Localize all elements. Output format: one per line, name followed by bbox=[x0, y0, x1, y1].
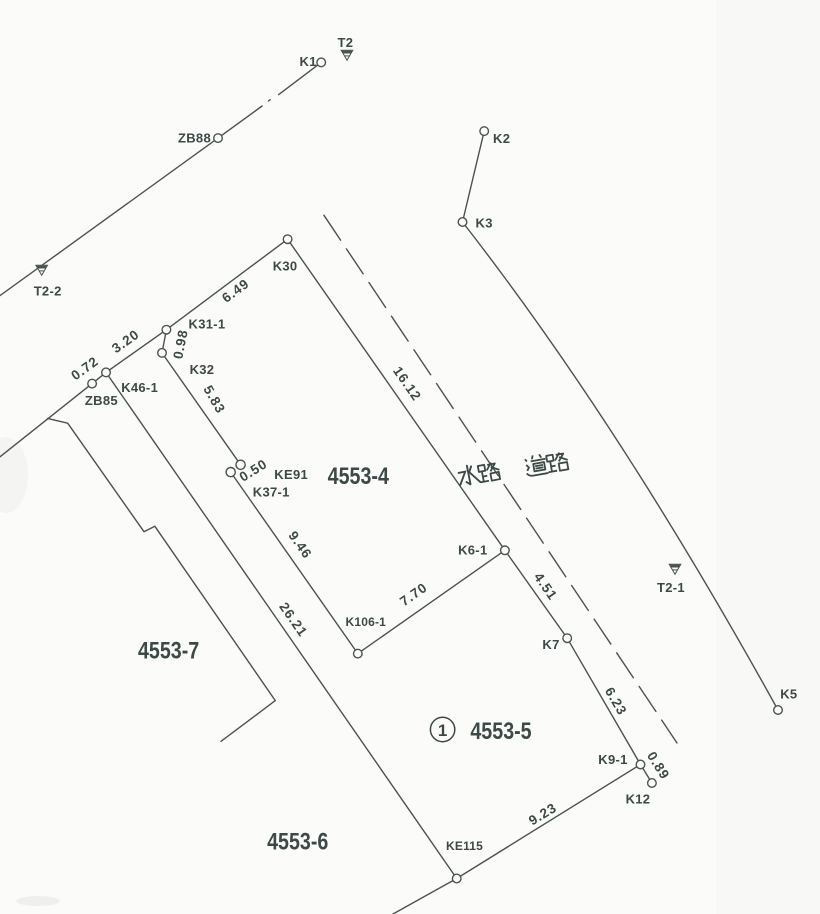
svg-text:3.20: 3.20 bbox=[109, 327, 142, 357]
svg-text:1: 1 bbox=[438, 721, 447, 740]
svg-text:7.70: 7.70 bbox=[397, 580, 430, 609]
svg-text:K12: K12 bbox=[626, 792, 651, 807]
svg-text:4.51: 4.51 bbox=[531, 570, 560, 603]
svg-text:T2-1: T2-1 bbox=[657, 580, 685, 595]
svg-text:0.72: 0.72 bbox=[68, 354, 101, 384]
svg-text:KE91: KE91 bbox=[274, 467, 308, 482]
svg-text:4553-4: 4553-4 bbox=[328, 462, 390, 489]
svg-text:T2-2: T2-2 bbox=[34, 284, 62, 299]
svg-text:K2: K2 bbox=[493, 131, 510, 146]
svg-text:ZB88: ZB88 bbox=[178, 131, 211, 146]
svg-text:4553-5: 4553-5 bbox=[470, 717, 531, 744]
svg-text:4553-7: 4553-7 bbox=[138, 637, 199, 664]
svg-text:K30: K30 bbox=[273, 259, 298, 274]
svg-text:K37-1: K37-1 bbox=[253, 485, 290, 500]
svg-text:4553-6: 4553-6 bbox=[267, 828, 328, 855]
svg-text:K6-1: K6-1 bbox=[458, 543, 487, 558]
svg-text:K46-1: K46-1 bbox=[121, 380, 158, 395]
svg-text:K32: K32 bbox=[190, 362, 215, 377]
svg-text:9.23: 9.23 bbox=[526, 800, 559, 828]
svg-text:K5: K5 bbox=[780, 687, 797, 702]
svg-text:26.21: 26.21 bbox=[276, 600, 310, 640]
svg-text:K7: K7 bbox=[542, 637, 559, 652]
svg-text:K3: K3 bbox=[476, 216, 493, 231]
svg-text:5.83: 5.83 bbox=[200, 383, 228, 416]
svg-text:6.23: 6.23 bbox=[602, 685, 630, 718]
svg-text:T2: T2 bbox=[338, 35, 354, 50]
svg-text:K106-1: K106-1 bbox=[346, 615, 387, 629]
svg-text:ZB85: ZB85 bbox=[85, 393, 118, 408]
svg-text:6.49: 6.49 bbox=[219, 276, 252, 306]
svg-text:16.12: 16.12 bbox=[390, 364, 424, 404]
svg-text:K1: K1 bbox=[300, 54, 317, 69]
svg-text:KE115: KE115 bbox=[446, 839, 483, 853]
svg-text:0.98: 0.98 bbox=[170, 328, 190, 360]
svg-text:K9-1: K9-1 bbox=[598, 752, 627, 767]
svg-text:K31-1: K31-1 bbox=[189, 317, 226, 332]
